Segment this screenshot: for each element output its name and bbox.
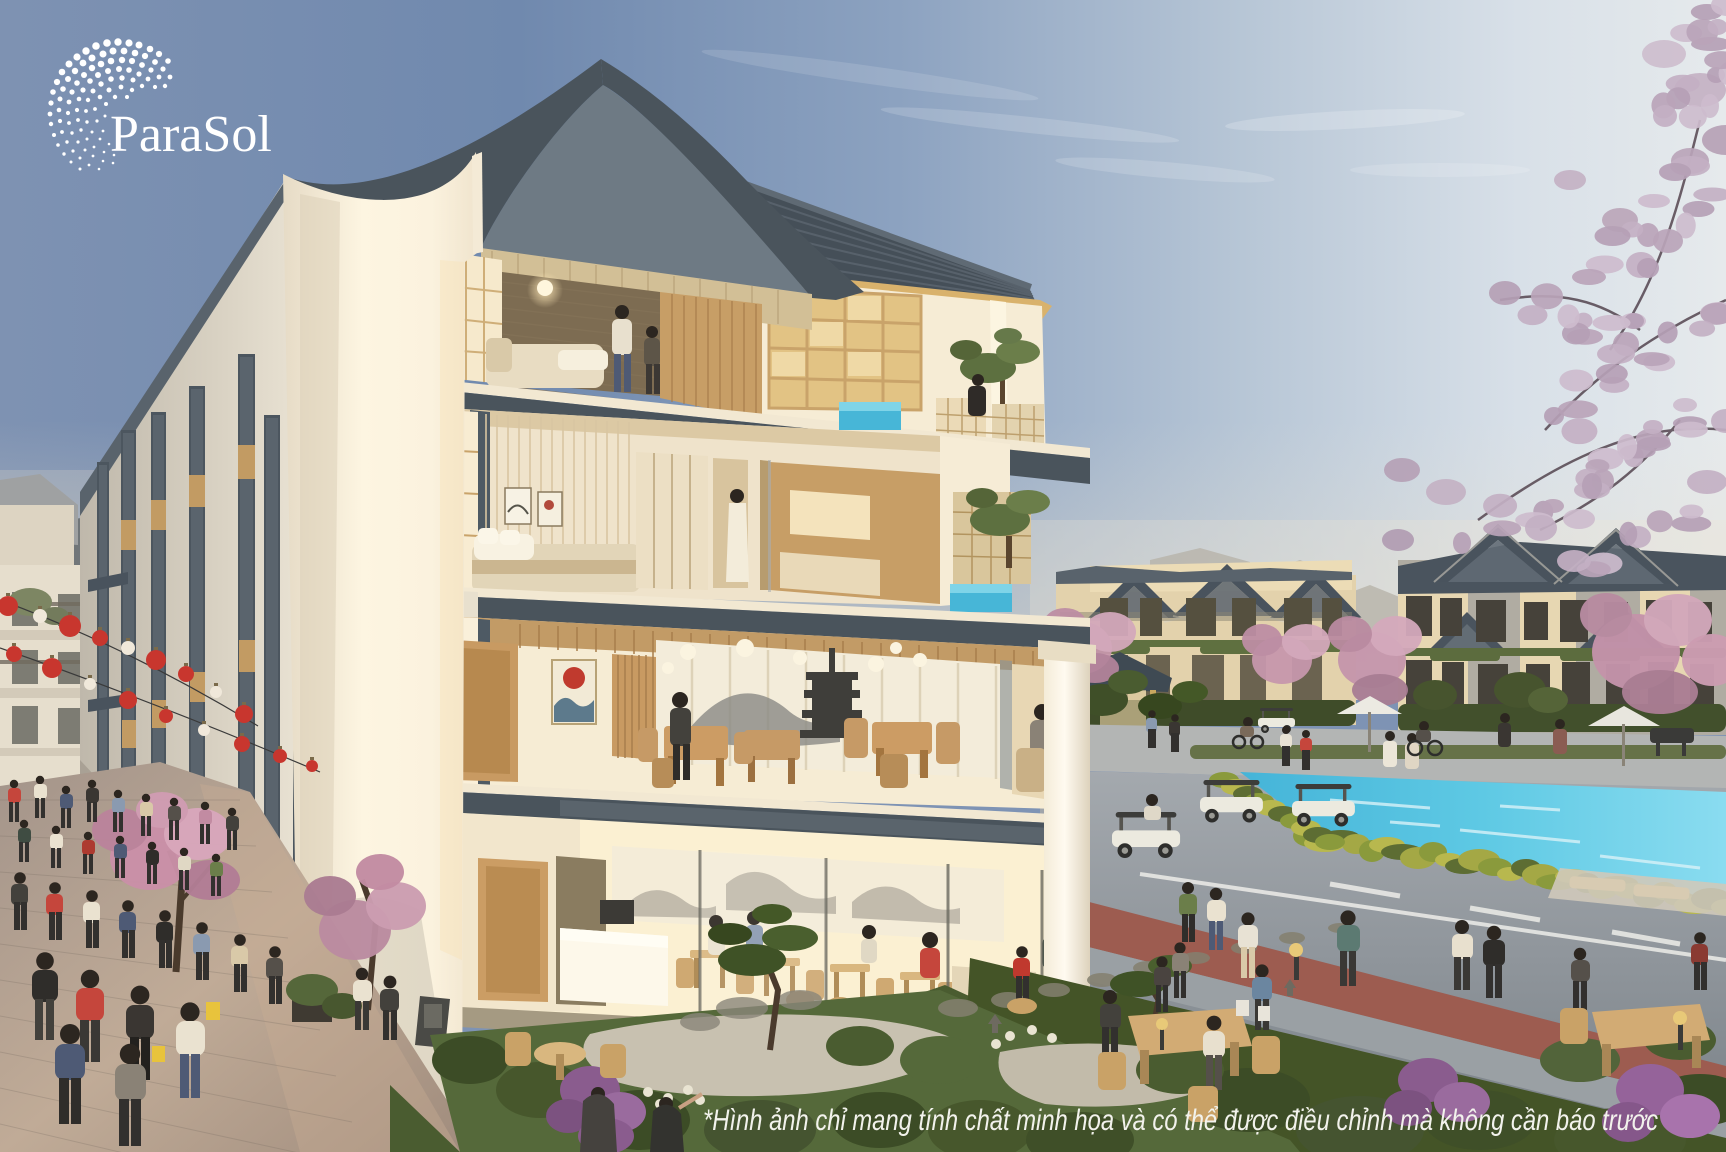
svg-text:ParaSol: ParaSol: [110, 106, 272, 163]
svg-text:*Hình ảnh chỉ mang tính chất m: *Hình ảnh chỉ mang tính chất minh họa và…: [703, 1104, 1658, 1137]
